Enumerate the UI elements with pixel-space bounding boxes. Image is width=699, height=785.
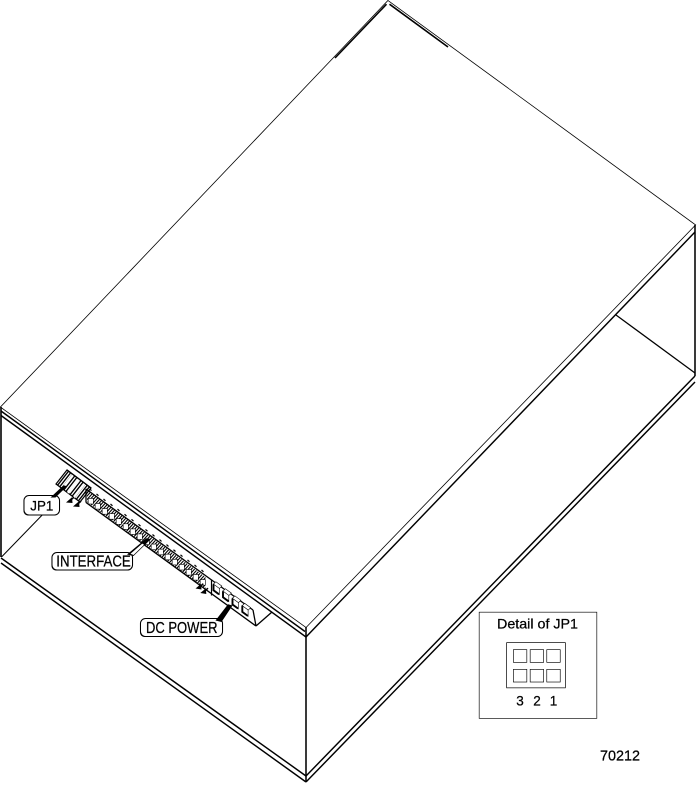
- svg-text:Detail of JP1: Detail of JP1: [497, 616, 578, 632]
- svg-text:70212: 70212: [600, 748, 640, 765]
- svg-text:3: 3: [516, 694, 524, 709]
- svg-text:DC POWER: DC POWER: [146, 620, 218, 637]
- svg-text:2: 2: [533, 694, 541, 709]
- svg-text:JP1: JP1: [30, 499, 53, 514]
- svg-text:1: 1: [550, 694, 558, 709]
- svg-text:INTERFACE: INTERFACE: [56, 554, 131, 571]
